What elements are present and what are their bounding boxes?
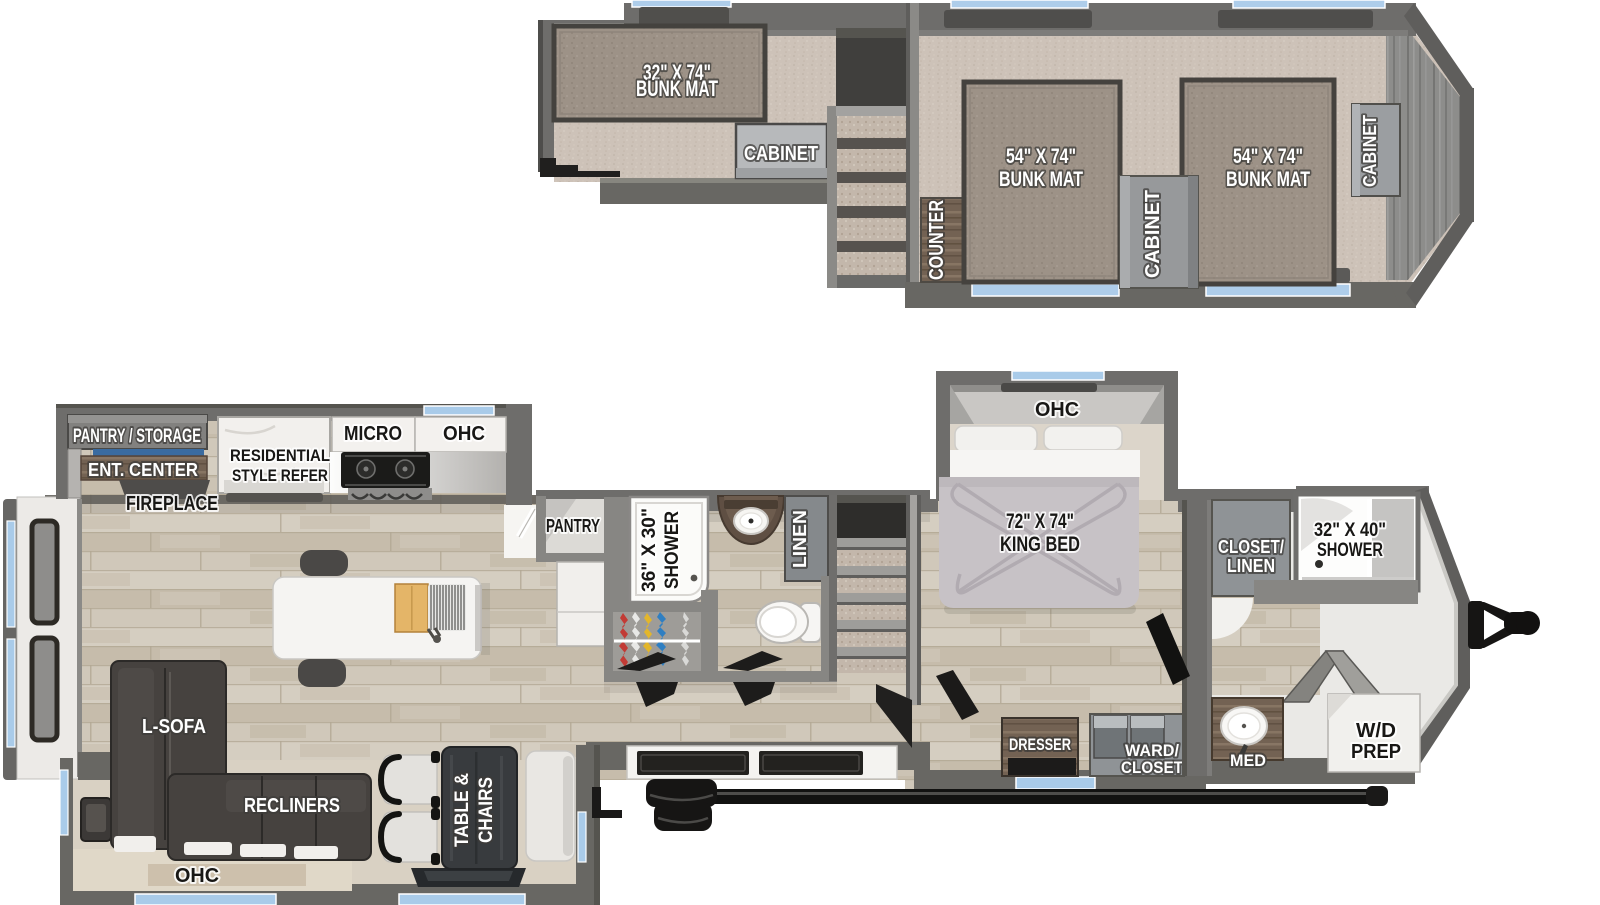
svg-text:DRESSER: DRESSER — [1009, 735, 1071, 754]
svg-text:32" X 40": 32" X 40" — [1314, 520, 1386, 541]
svg-text:SHOWER: SHOWER — [662, 511, 683, 589]
svg-text:COUNTER: COUNTER — [926, 200, 948, 280]
svg-text:ENT. CENTER: ENT. CENTER — [88, 460, 198, 480]
svg-text:CHAIRS: CHAIRS — [476, 777, 497, 843]
svg-text:CLOSET: CLOSET — [1121, 758, 1184, 777]
svg-text:54" X 74": 54" X 74" — [1233, 145, 1303, 168]
svg-text:RESIDENTIAL: RESIDENTIAL — [230, 446, 330, 465]
svg-text:MICRO: MICRO — [344, 423, 402, 445]
svg-text:PANTRY: PANTRY — [546, 516, 600, 536]
svg-text:L-SOFA: L-SOFA — [142, 716, 206, 738]
svg-text:LINEN: LINEN — [1227, 556, 1275, 576]
svg-text:BUNK MAT: BUNK MAT — [636, 76, 718, 101]
svg-text:OHC: OHC — [1035, 399, 1079, 421]
svg-text:PREP: PREP — [1351, 741, 1401, 763]
svg-text:OHC: OHC — [443, 423, 485, 445]
svg-text:36" X 30": 36" X 30" — [639, 508, 660, 592]
svg-text:PANTRY / STORAGE: PANTRY / STORAGE — [73, 426, 201, 447]
svg-text:CABINET: CABINET — [744, 143, 818, 165]
svg-text:BUNK MAT: BUNK MAT — [999, 168, 1083, 191]
svg-text:OHC: OHC — [175, 865, 219, 887]
svg-text:CABINET: CABINET — [1360, 115, 1380, 187]
svg-text:RECLINERS: RECLINERS — [244, 795, 340, 817]
svg-text:72" X 74": 72" X 74" — [1006, 510, 1074, 533]
svg-text:CLOSET/: CLOSET/ — [1218, 537, 1284, 557]
svg-text:FIREPLACE: FIREPLACE — [126, 493, 218, 515]
svg-text:SHOWER: SHOWER — [1317, 540, 1383, 561]
svg-text:TABLE &: TABLE & — [452, 773, 473, 847]
svg-text:KING BED: KING BED — [1000, 533, 1080, 556]
svg-text:BUNK MAT: BUNK MAT — [1226, 168, 1310, 191]
svg-text:54" X 74": 54" X 74" — [1006, 145, 1076, 168]
svg-text:LINEN: LINEN — [790, 510, 810, 568]
svg-text:W/D: W/D — [1356, 720, 1396, 742]
svg-text:CABINET: CABINET — [1142, 190, 1164, 278]
svg-text:STYLE REFER: STYLE REFER — [232, 466, 328, 485]
svg-text:MED: MED — [1230, 751, 1266, 770]
